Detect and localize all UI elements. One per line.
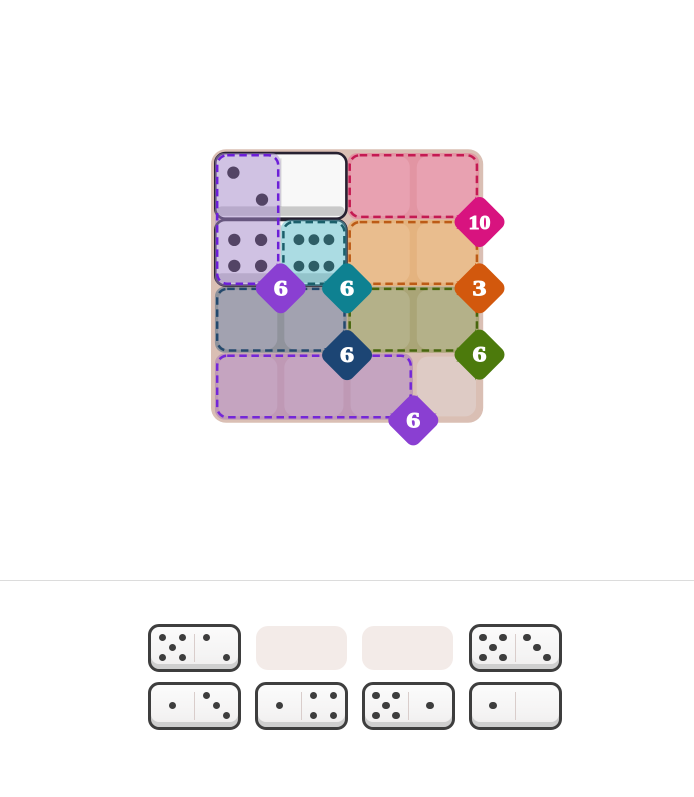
svg-text:6: 6 xyxy=(406,407,420,432)
svg-text:6: 6 xyxy=(340,342,354,367)
svg-text:3: 3 xyxy=(473,275,487,300)
svg-text:6: 6 xyxy=(473,342,487,367)
svg-text:10: 10 xyxy=(469,212,491,234)
svg-text:6: 6 xyxy=(340,275,354,300)
svg-text:6: 6 xyxy=(274,275,288,300)
